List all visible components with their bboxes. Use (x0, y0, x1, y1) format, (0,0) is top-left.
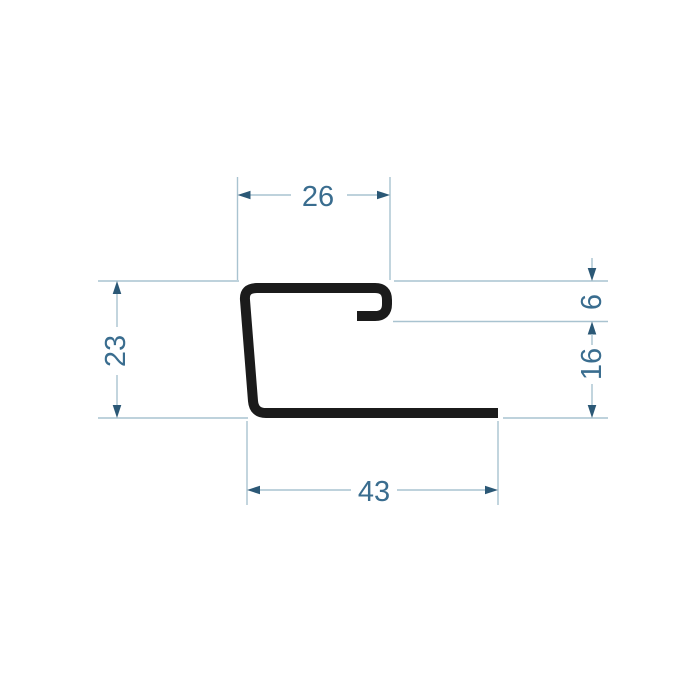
arrow-left-icon (238, 191, 251, 200)
dimension-left-height: 23 (98, 281, 248, 418)
arrow-up-icon (588, 322, 597, 335)
dimension-top-width: 26 (238, 177, 391, 280)
arrow-down-icon (113, 405, 122, 418)
dimension-value-hook: 6 (576, 294, 608, 310)
dimension-value-top: 26 (302, 181, 334, 213)
dimension-value-right: 16 (576, 348, 608, 380)
dimension-bottom-width: 43 (247, 421, 498, 508)
drawing-page: 26 23 6 16 (0, 0, 700, 700)
dimension-right-stack: 6 16 (393, 258, 608, 418)
arrow-left-icon (247, 486, 260, 495)
dimension-value-left: 23 (100, 335, 132, 367)
profile-drawing-canvas: 26 23 6 16 (0, 0, 700, 700)
dimension-value-bottom: 43 (358, 476, 390, 508)
arrow-right-icon (377, 191, 390, 200)
arrow-up-icon (113, 281, 122, 294)
profile-outline (245, 288, 498, 413)
arrow-right-icon (485, 486, 498, 495)
arrow-down-icon (588, 268, 597, 281)
arrow-down-icon (588, 405, 597, 418)
